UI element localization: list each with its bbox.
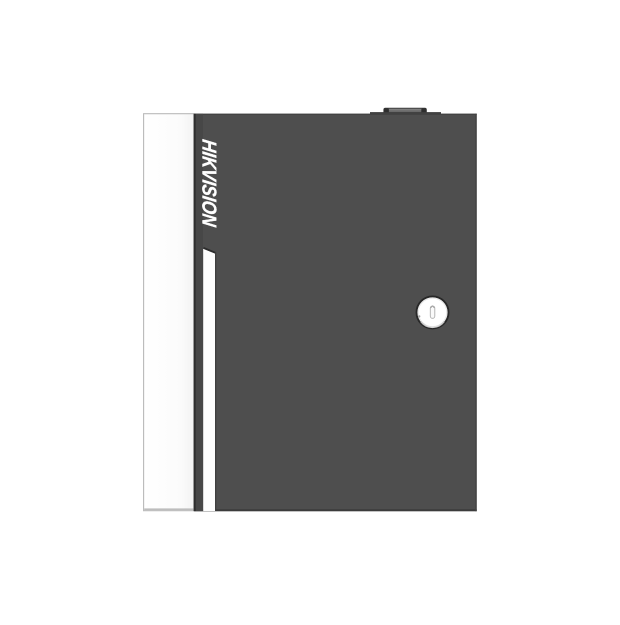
svg-text:HIKVISION: HIKVISION: [197, 138, 219, 228]
